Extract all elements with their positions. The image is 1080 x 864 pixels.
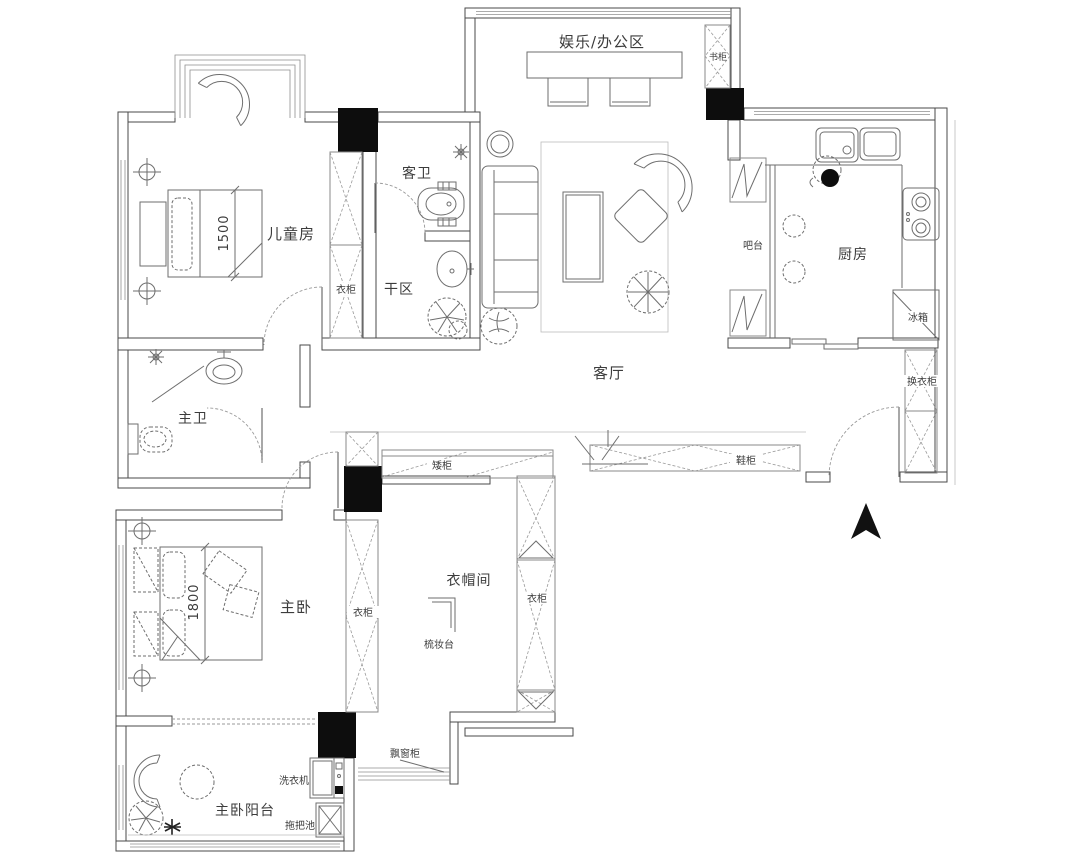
dimension-master-bed: 1800 (187, 583, 202, 620)
furniture-label-cloakroom-wardrobe: 衣柜 (527, 592, 547, 605)
balcony-table (180, 765, 214, 799)
living-room-furniture (481, 131, 706, 344)
text-labels: 娱乐/办公区 书柜 儿童房 1500 衣柜 客卫 干区 客厅 吧台 厨房 冰箱 … (178, 33, 939, 832)
room-label-living: 客厅 (593, 364, 625, 382)
furniture-label-mop-sink: 拖把池 (285, 819, 315, 832)
shoe-cabinet (590, 445, 800, 471)
guest-bath-door (375, 183, 425, 233)
room-label-balcony: 主卧阳台 (215, 803, 275, 819)
floor-plan-canvas: 娱乐/办公区 书柜 儿童房 1500 衣柜 客卫 干区 客厅 吧台 厨房 冰箱 … (0, 0, 1080, 864)
dressing-table (428, 598, 455, 632)
column (706, 88, 744, 120)
furniture-label-shoe-cabinet: 鞋柜 (736, 454, 756, 467)
room-label-master-bedroom: 主卧 (280, 598, 312, 616)
kitchen-sliding-door (792, 339, 858, 349)
changing-wardrobe-cabinet (905, 350, 937, 473)
kitchen-sink (816, 128, 900, 162)
master-bath-fixtures (128, 349, 242, 454)
furniture-label-washing-machine: 洗衣机 (279, 774, 309, 787)
furniture-label-children-wardrobe: 衣柜 (336, 283, 356, 296)
room-label-cloakroom: 衣帽间 (447, 573, 492, 589)
shower-icon (148, 349, 164, 365)
master-bath-door (207, 408, 262, 463)
office-desk (527, 52, 682, 106)
wash-basin (206, 350, 242, 384)
furniture-label-dressing-table: 梳妆台 (424, 638, 454, 651)
leader-line (400, 760, 444, 772)
dimension-children-bed: 1500 (217, 214, 232, 251)
dry-area-fixtures (428, 251, 474, 339)
corridor-marks (575, 430, 648, 464)
ottoman (613, 188, 670, 245)
hall-cabinet (346, 432, 378, 466)
radial-plant (627, 271, 669, 313)
shower-icon (453, 144, 469, 160)
room-label-bar: 吧台 (743, 239, 763, 252)
bay-armchair (198, 62, 262, 126)
mop-pool (316, 803, 344, 837)
column (318, 712, 356, 758)
room-label-office: 娱乐/办公区 (559, 33, 645, 51)
room-label-kitchen: 厨房 (838, 247, 868, 263)
furniture-label-fridge: 冰箱 (908, 311, 928, 324)
armchair (634, 140, 706, 212)
furniture-label-bay-window-cabinet: 飘窗柜 (390, 747, 420, 760)
low-cabinet (382, 450, 553, 478)
room-label-children: 儿童房 (267, 225, 315, 243)
column (344, 466, 382, 512)
room-label-master-bath: 主卫 (178, 411, 208, 427)
plant (428, 298, 467, 339)
stove (903, 188, 939, 240)
furniture-label-bookcase: 书柜 (709, 51, 727, 63)
plant (481, 308, 517, 344)
washing-machine-box (310, 758, 344, 798)
entry-door (829, 407, 899, 477)
room-label-dry-area: 干区 (384, 282, 414, 298)
kitchen-fixtures (765, 128, 939, 340)
children-wardrobe-cabinet (330, 152, 362, 338)
balcony-chair (134, 755, 160, 807)
furniture-label-master-wardrobe: 衣柜 (353, 606, 373, 619)
furniture-label-changing-wardrobe: 换衣柜 (907, 375, 937, 388)
toilet (128, 424, 172, 454)
walls (116, 8, 955, 851)
children-room-door (264, 287, 322, 345)
guest-bath-fixtures (418, 144, 469, 226)
column (338, 108, 378, 152)
structural-columns (318, 88, 744, 758)
children-bed (140, 186, 262, 281)
furniture-label-low-cabinet: 矮柜 (432, 459, 452, 472)
north-arrow (851, 503, 881, 539)
room-label-guest-bath: 客卫 (402, 165, 432, 182)
small-appliance (810, 156, 841, 187)
bar-stools (783, 215, 805, 283)
floor-plan-page: 娱乐/办公区 书柜 儿童房 1500 衣柜 客卫 干区 客厅 吧台 厨房 冰箱 … (0, 0, 1080, 864)
